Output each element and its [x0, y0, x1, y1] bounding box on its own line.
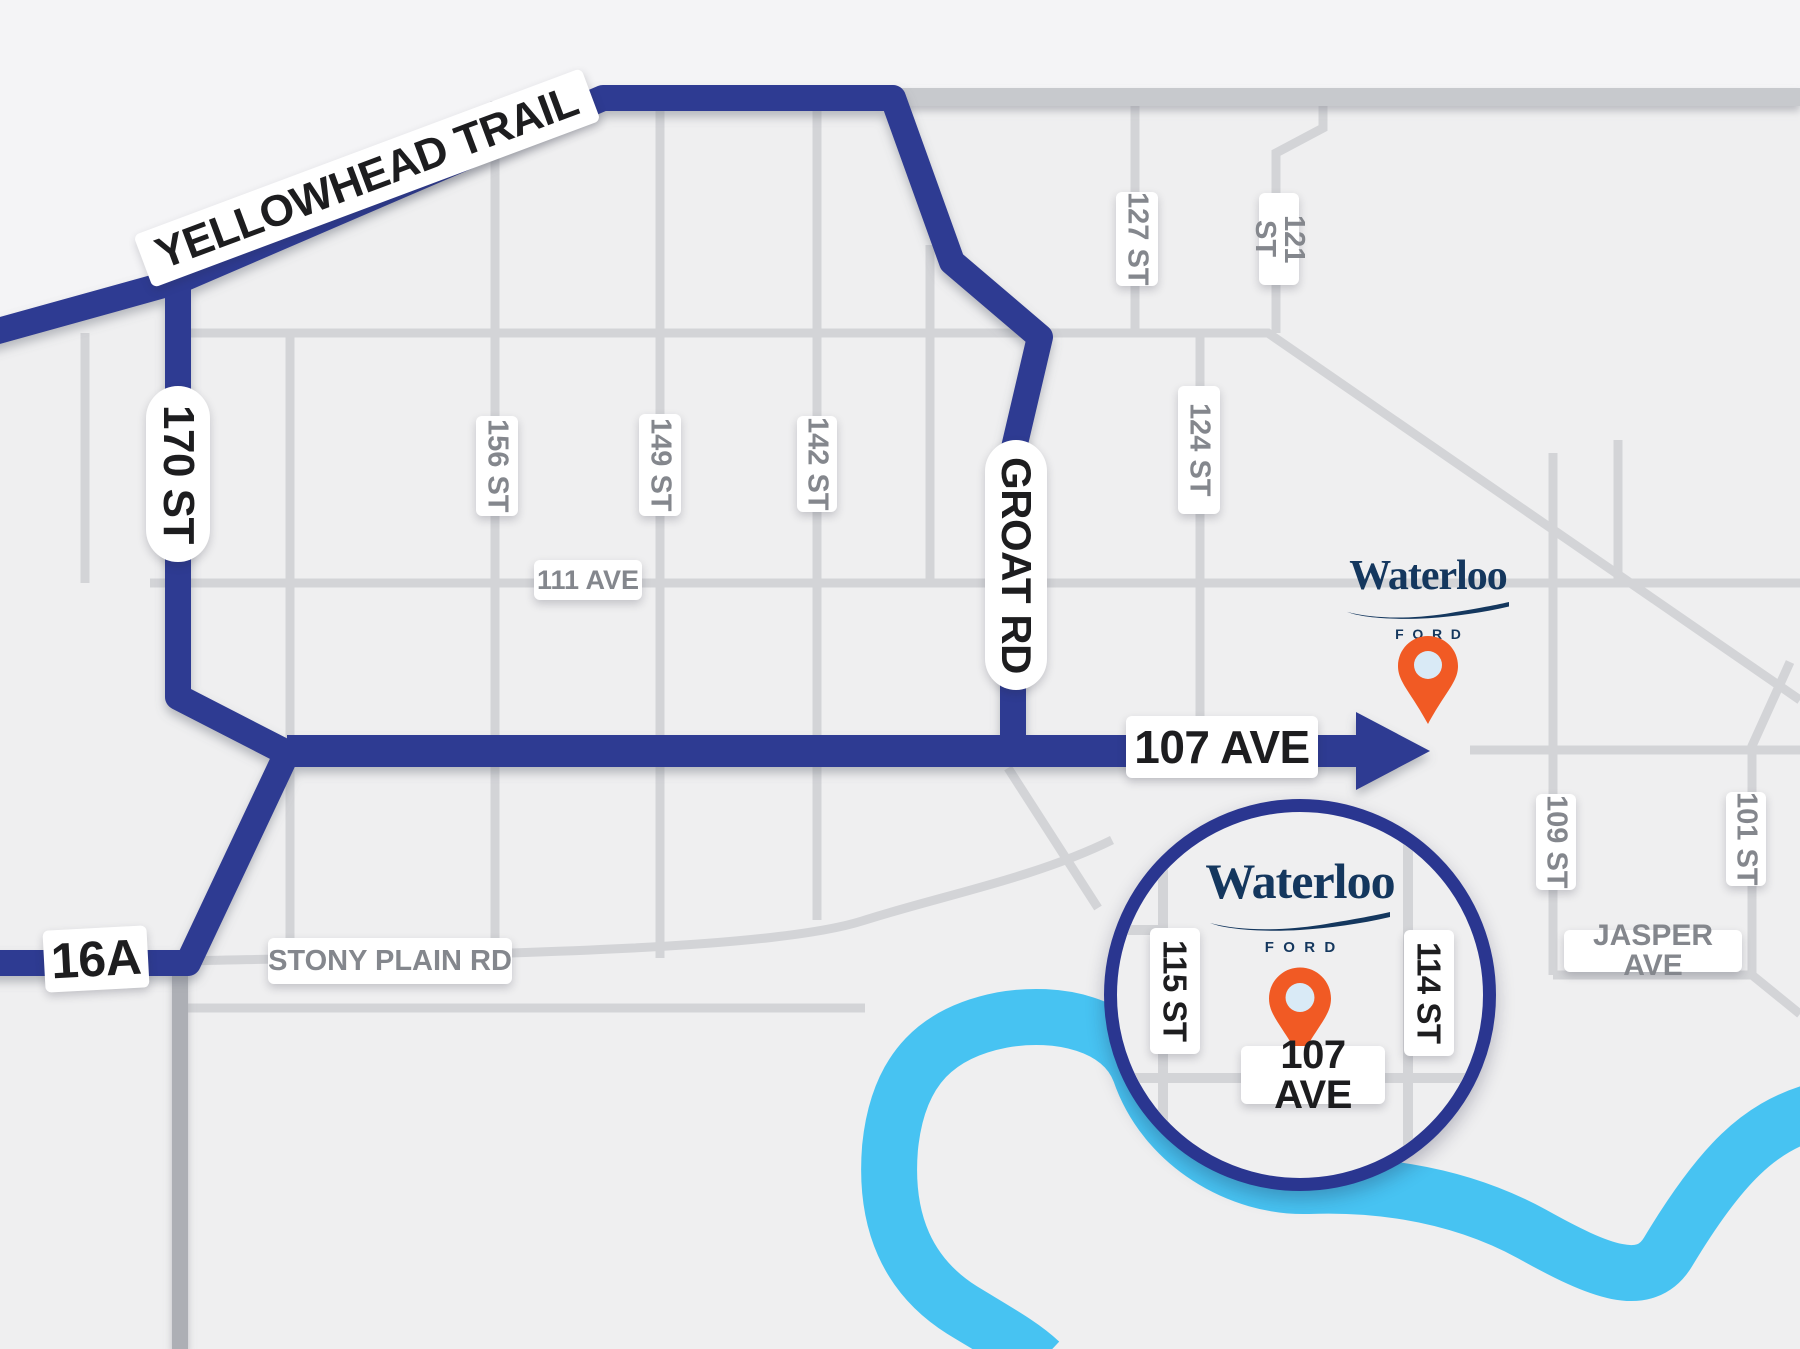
label-111-ave: 111 AVE: [534, 560, 642, 600]
label-170-st: 170 ST: [146, 386, 210, 562]
label-16a: 16A: [42, 925, 149, 992]
label-121-st: 121 ST: [1259, 193, 1299, 285]
label-156-st: 156 ST: [476, 416, 518, 516]
logo-swoosh-icon: [1200, 912, 1400, 932]
zoom-inset-circle: Waterloo FORD 115 ST 114 ST 107 AVE: [1104, 799, 1496, 1191]
label-107-ave-main: 107 AVE: [1126, 716, 1318, 778]
label-124-st: 124 ST: [1178, 386, 1220, 514]
label-107-ave-inset: 107 AVE: [1241, 1046, 1385, 1104]
label-115-st: 115 ST: [1150, 928, 1200, 1054]
label-149-st: 149 ST: [639, 414, 681, 516]
label-groat-rd: GROAT RD: [985, 440, 1047, 690]
logo-brand: FORD: [1195, 939, 1405, 956]
waterloo-ford-logo-main: Waterloo FORD: [1338, 552, 1518, 642]
logo-name: Waterloo: [1338, 552, 1518, 600]
label-stony-plain-rd: STONY PLAIN RD: [268, 938, 512, 984]
label-142-st: 142 ST: [797, 416, 837, 512]
waterloo-ford-logo-inset: Waterloo FORD: [1195, 852, 1405, 956]
logo-name: Waterloo: [1195, 852, 1405, 910]
label-109-st: 109 ST: [1536, 794, 1576, 890]
label-114-st: 114 ST: [1404, 930, 1454, 1056]
logo-swoosh-icon: [1340, 602, 1516, 620]
label-jasper-ave: JASPER AVE: [1564, 930, 1742, 972]
light-blocks: [0, 0, 1800, 336]
map-canvas: YELLOWHEAD TRAIL 170 ST GROAT RD 16A 107…: [0, 0, 1800, 1349]
location-pin-icon-main[interactable]: [1398, 636, 1458, 724]
label-127-st: 127 ST: [1116, 192, 1158, 286]
label-101-st: 101 ST: [1726, 792, 1766, 886]
